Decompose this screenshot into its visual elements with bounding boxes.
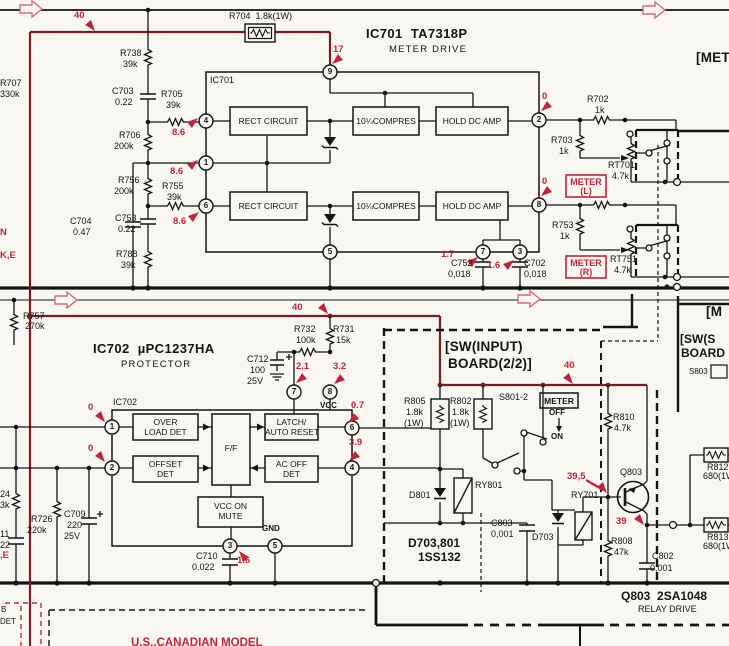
- wiper-arrow-icon: [621, 247, 629, 253]
- meter-l-line2: (L): [566, 187, 606, 197]
- label-r805-ref: R805: [404, 397, 426, 406]
- label-q803: Q803: [620, 468, 642, 477]
- ic701-pin-6: 6: [199, 202, 213, 210]
- block-acoff-det: DET: [265, 470, 318, 479]
- label-rt751-val: 4.7k: [614, 266, 631, 275]
- relay-ry801: [454, 478, 472, 513]
- label-c803-ref: C803: [491, 519, 513, 528]
- resistor-r704-boxed: [245, 24, 275, 42]
- label-rt701-val: 4.7k: [612, 172, 629, 181]
- block-acoff: AC OFF: [265, 460, 318, 469]
- label-r805-val: 1.8k: [406, 408, 423, 417]
- block-compres-2: 10¼COMPRES: [353, 202, 419, 211]
- block-auto-reset: AUTO RESET: [265, 428, 318, 437]
- note-d-refs: D703,801: [408, 537, 460, 549]
- note-model: U.S.,CANADIAN MODEL: [131, 638, 263, 646]
- zener-diode-icon: [322, 214, 338, 227]
- ic702-pin-1: 1: [105, 423, 119, 431]
- label-rt751-ref: RT751: [610, 255, 637, 264]
- label-c704-ref: C704: [70, 217, 92, 226]
- voltage-3p2: 3.2: [333, 362, 346, 372]
- s803-connector-box: [711, 365, 727, 378]
- board-meter-partial: [MET: [696, 51, 729, 65]
- meter-switch-boxes: [636, 130, 678, 277]
- label-r702-val: 1k: [595, 106, 605, 115]
- voltage-0-pin2: 0: [542, 92, 547, 102]
- label-r753-val: 1k: [560, 232, 570, 241]
- label-r802-ref: R802: [450, 397, 472, 406]
- resistor-r705: [166, 119, 186, 126]
- resistor-r802-boxed: [474, 399, 492, 429]
- edge-text-n: N: [0, 228, 7, 238]
- ic702-part-title: IC702 µPC1237HA: [93, 342, 215, 355]
- voltage-2p1: 2.1: [296, 362, 309, 372]
- edge-text-22: 22: [0, 541, 10, 550]
- label-r703-val: 1k: [559, 147, 569, 156]
- schematic-page: 40 R704 1.8k(1W) IC701 TA7318P METER DRI…: [0, 0, 729, 646]
- label-c709-ref: C709: [64, 510, 86, 519]
- ic701-pin-3: 3: [513, 248, 527, 256]
- label-r707-val: 330k: [0, 90, 20, 99]
- board-m-partial: [M: [706, 305, 722, 319]
- ic702-pin-2: 2: [105, 464, 119, 472]
- voltage-40-mid: 40: [292, 303, 303, 313]
- resistor-r757: [11, 313, 18, 331]
- label-r732-ref: R732: [294, 325, 316, 334]
- resistor-r810: [605, 412, 612, 430]
- block-ff: F/F: [212, 444, 250, 453]
- label-r755-ref: R755: [162, 182, 184, 191]
- label-r706-ref: R706: [119, 131, 141, 140]
- block-offset: OFFSET: [133, 460, 198, 469]
- voltage-40-top: 40: [74, 11, 85, 21]
- label-r726-ref: R726: [31, 515, 53, 524]
- ic702-pin-6: 6: [345, 424, 359, 432]
- diode-d801-icon: [434, 488, 446, 499]
- label-r731-val: 15k: [336, 336, 351, 345]
- ground-icon: [270, 374, 284, 380]
- voltage-0-ic702-pin1: 0: [88, 403, 93, 413]
- edge-text-11: 11: [0, 530, 9, 539]
- label-r706-val: 200k: [114, 142, 134, 151]
- label-r788-val: 39k: [121, 261, 136, 270]
- ic701-pin-8: 8: [532, 201, 546, 209]
- label-r705-val: 39k: [166, 101, 181, 110]
- block-hold-dc-amp-1: HOLD DC AMP: [436, 117, 508, 126]
- note-q803-fn: RELAY DRIVE: [638, 605, 697, 614]
- resistor-r812-boxed: [704, 448, 728, 462]
- label-r756-ref: R756: [118, 176, 140, 185]
- ic701-pin-9: 9: [323, 68, 337, 76]
- label-c703-ref: C703: [112, 87, 134, 96]
- label-c709-val: 220: [67, 521, 82, 530]
- ic702-box-ref: IC702: [113, 398, 137, 407]
- resistor-r805-boxed: [431, 399, 449, 429]
- board-sw-input-line1: [SW(INPUT): [445, 340, 523, 354]
- voltage-8p6-pin4: 8.6: [172, 128, 185, 138]
- note-q803: Q803 2SA1048: [621, 590, 707, 602]
- label-r757-val: 270k: [25, 322, 45, 331]
- resistor-r732: [298, 349, 318, 356]
- meter-switch-label: METER: [540, 397, 578, 406]
- block-offset-det: DET: [133, 470, 198, 479]
- voltage-40-sw: 40: [564, 361, 575, 371]
- ic702-function: PROTECTOR: [121, 360, 191, 370]
- ic701-pin-1: 1: [199, 159, 213, 167]
- ic702-pin-5: 5: [268, 542, 282, 550]
- switch-off-label: OFF: [549, 409, 565, 417]
- label-r788-ref: R788: [116, 250, 138, 259]
- resistor-r756: [145, 177, 152, 195]
- block-rect-circuit-1: RECT CIRCUIT: [230, 117, 307, 126]
- ic702-pin-7: 7: [287, 388, 301, 396]
- switch-on-label: ON: [551, 433, 563, 441]
- voltage-8p6-pin1: 8.6: [170, 167, 183, 177]
- label-r753-ref: R753: [552, 221, 574, 230]
- label-r705-ref: R705: [161, 90, 183, 99]
- label-r738-val: 39k: [123, 60, 138, 69]
- ic701-pin-7: 7: [476, 248, 490, 256]
- label-r802-val: 1.8k: [452, 408, 469, 417]
- label-c712-val: 100: [250, 366, 265, 375]
- ic701-pin-5: 5: [323, 248, 337, 256]
- label-r707-ref: R707: [0, 79, 22, 88]
- voltage-39p5: 39,5: [567, 472, 586, 482]
- label-ry801: RY801: [475, 481, 502, 490]
- edge-text-det: DET: [0, 618, 16, 626]
- label-c702-val: 0,018: [524, 270, 547, 279]
- label-r726-val: 220k: [27, 526, 47, 535]
- label-c752-ref: C752: [451, 259, 473, 268]
- label-c703-val: 0.22: [115, 98, 133, 107]
- label-rt701-ref: RT701: [608, 161, 635, 170]
- label-r808-ref: R808: [611, 537, 633, 546]
- board-sw-s-partial: [SW(S: [680, 333, 715, 345]
- resistor-r755: [166, 203, 186, 210]
- trimmer-rt701: [628, 142, 635, 160]
- resistor-r753: [577, 217, 584, 235]
- ic702-gnd-label: GND: [262, 525, 280, 533]
- label-r732-val: 100k: [296, 336, 316, 345]
- label-r755-val: 39k: [167, 193, 182, 202]
- label-r757-ref: R757: [23, 312, 45, 321]
- resistor-r813-boxed: [704, 518, 728, 532]
- label-r704: R704 1.8k(1W): [229, 12, 292, 21]
- meter-r-line2: (R): [566, 268, 606, 278]
- ic701-part-title: IC701 TA7318P: [366, 27, 467, 40]
- ic702-pin-3: 3: [223, 542, 237, 550]
- resistor-r738: [145, 48, 152, 66]
- label-r813-val: 680(1W: [703, 542, 729, 551]
- label-c802-val: 0,001: [650, 564, 673, 573]
- voltage-0-ic702-pin2: 0: [88, 444, 93, 454]
- label-r810-val: 4.7k: [614, 424, 631, 433]
- voltage-8p6-pin6: 8.6: [173, 217, 186, 227]
- label-ry701: RY701: [571, 491, 598, 500]
- label-c753-val: 0.22: [118, 225, 136, 234]
- label-c712-ref: C712: [247, 355, 269, 364]
- label-r808-val: 47k: [614, 548, 629, 557]
- label-c702-ref: C702: [524, 259, 546, 268]
- block-hold-dc-amp-2: HOLD DC AMP: [436, 202, 508, 211]
- relay-ry701: [575, 512, 592, 540]
- label-d703: D703: [532, 533, 554, 542]
- board-board-partial: BOARD: [681, 347, 725, 359]
- voltage-1p6-pin3: 1.6: [237, 556, 250, 566]
- label-r756-val: 200k: [114, 187, 134, 196]
- label-r805-watt: (1W): [404, 419, 424, 428]
- label-c710-ref: C710: [196, 552, 218, 561]
- label-c803-val: 0,001: [491, 530, 514, 539]
- ic702-vcc-label: VCC: [320, 402, 337, 410]
- ic701-function: METER DRIVE: [389, 45, 467, 55]
- label-s803: S803: [689, 368, 708, 376]
- label-d801: D801: [409, 491, 431, 500]
- block-over: OVER: [133, 418, 198, 427]
- ic701-box-ref: IC701: [210, 76, 234, 85]
- meter-drive-right: [546, 120, 729, 277]
- resistor-r702: [592, 117, 612, 124]
- label-r802-watt: (1W): [450, 419, 470, 428]
- ic702-pin-4: 4: [345, 464, 359, 472]
- diode-d703-icon: [552, 513, 564, 524]
- block-vcc-on: VCC ON: [198, 502, 263, 511]
- label-c753-ref: C753: [115, 214, 137, 223]
- block-load-det: LOAD DET: [133, 428, 198, 437]
- voltage-0p7: 0.7: [351, 401, 364, 411]
- block-rect-circuit-2: RECT CIRCUIT: [230, 202, 307, 211]
- label-c802-ref: C802: [652, 552, 674, 561]
- resistor-r724: [13, 492, 20, 510]
- board-sw-input-line2: BOARD(2/2)]: [448, 357, 532, 371]
- block-compres-1: 10¼COMPRES: [353, 117, 419, 126]
- label-s801: S801-2: [499, 393, 528, 402]
- note-d-type: 1SS132: [418, 551, 461, 563]
- edge-text-b: B: [1, 606, 6, 614]
- edge-text-ke: K,E: [0, 251, 16, 261]
- label-r812-val: 680(1W: [703, 472, 729, 481]
- voltage-0-pin8: 0: [542, 177, 547, 187]
- label-r738-ref: R738: [120, 49, 142, 58]
- label-c710-val: 0.022: [192, 563, 215, 572]
- voltage-1p6: 1.6: [487, 261, 500, 271]
- voltage-39: 39: [616, 517, 627, 527]
- label-c704-val: 0.47: [73, 228, 91, 237]
- resistor-r726: [54, 500, 61, 518]
- voltage-17: 17: [333, 45, 344, 55]
- edge-text-24: 24: [0, 490, 10, 499]
- block-mute: MUTE: [198, 512, 263, 521]
- label-c709-volt: 25V: [64, 532, 80, 541]
- edge-text-e: ,E: [0, 551, 9, 561]
- resistor-r706: [145, 133, 152, 151]
- label-r703-ref: R703: [551, 136, 573, 145]
- label-r810-ref: R810: [613, 413, 635, 422]
- zener-diode-icon: [322, 137, 338, 150]
- ic702-pin-8: 8: [323, 388, 337, 396]
- resistor-r788: [145, 250, 152, 268]
- label-r731-ref: R731: [333, 325, 355, 334]
- edge-text-3k: 3k: [0, 501, 10, 510]
- ic701-pin-4: 4: [199, 117, 213, 125]
- resistor-r752: [592, 202, 612, 209]
- block-latch: LATCH/: [265, 418, 318, 427]
- label-r702-ref: R702: [587, 95, 609, 104]
- ic701-pin-2: 2: [532, 116, 546, 124]
- trimmer-rt751: [628, 237, 635, 255]
- label-c712-volt: 25V: [247, 377, 263, 386]
- label-c752-val: 0,018: [448, 270, 471, 279]
- resistor-r703: [577, 134, 584, 152]
- voltage-3p9: 3.9: [349, 438, 362, 448]
